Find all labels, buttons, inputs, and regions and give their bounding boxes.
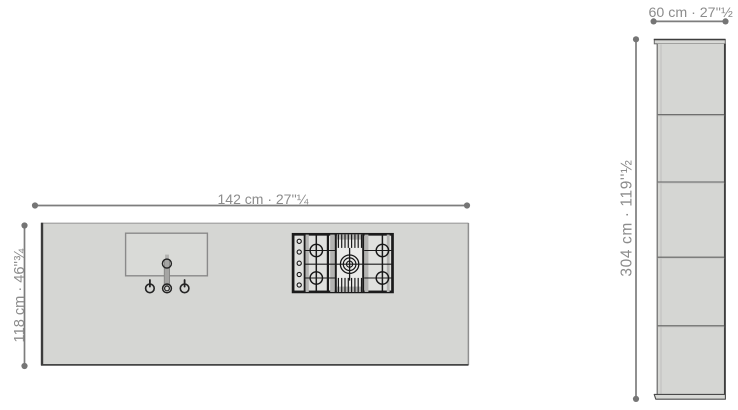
svg-text:118 cm · 46''¾: 118 cm · 46''¾: [12, 248, 28, 343]
svg-text:304 cm · 119''½: 304 cm · 119''½: [618, 159, 635, 276]
svg-text:60 cm · 27''½: 60 cm · 27''½: [649, 5, 733, 21]
svg-text:142 cm · 27''¼: 142 cm · 27''¼: [218, 191, 309, 207]
